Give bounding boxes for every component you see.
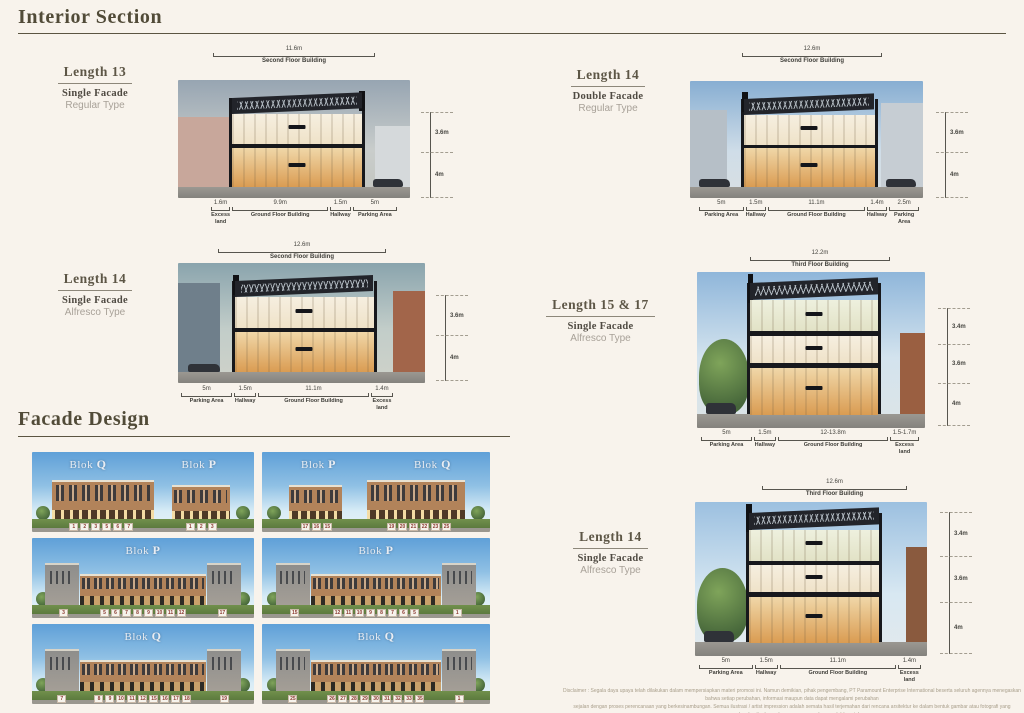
second-floor <box>235 297 373 328</box>
height-zone: 3.6m <box>936 112 968 152</box>
plot-number-marker: 15 <box>290 609 299 617</box>
dimension-line <box>742 53 882 57</box>
facade-type-label: Single Facade <box>538 321 663 332</box>
plot-number-marker: 32 <box>393 695 402 703</box>
shophouse-building <box>289 485 341 519</box>
shophouse-row <box>45 651 240 691</box>
plot-number-group: 123 <box>186 523 217 531</box>
width-segment: 1.5mHallway <box>745 200 767 226</box>
plot-number-marker: 16 <box>160 695 169 703</box>
street <box>178 372 425 383</box>
width-segment: 5mParking Area <box>352 200 398 226</box>
end-tower <box>276 563 310 605</box>
width-segment: 1.5mHallway <box>754 658 779 684</box>
dimension-value: 3.6m <box>952 361 966 367</box>
ground-floor <box>235 332 373 372</box>
plot-number-marker: 12 <box>138 695 147 703</box>
height-zone: 3.4m <box>938 308 970 344</box>
height-zone: 3.6m <box>421 112 453 152</box>
width-segment: 9.9mGround Floor Building <box>231 200 329 226</box>
plot-number-marker: 3 <box>208 523 217 531</box>
section-render-length15-17 <box>697 272 925 428</box>
plot-number-marker: 7 <box>122 609 131 617</box>
variant-type-label: Alfresco Type <box>25 307 165 318</box>
disclaimer-line: sejalan dengan proses perencanaan yang b… <box>563 703 1021 713</box>
plot-number-group: 15 <box>290 609 299 617</box>
height-zone: 3.6m <box>940 556 972 602</box>
plot-number-marker: 12 <box>333 609 342 617</box>
plot-number-marker: 9 <box>366 609 375 617</box>
section-label-length14-double: Length 14 Double Facade Regular Type <box>548 66 668 114</box>
plot-number-marker: 16 <box>312 523 321 531</box>
roof-truss <box>744 93 874 115</box>
width-segment: 1.4mExcess land <box>370 386 394 412</box>
plot-number-marker: 19 <box>387 523 396 531</box>
variant-type-label: Regular Type <box>25 100 165 111</box>
car <box>373 179 403 187</box>
blok-label: Blok Q <box>414 457 451 472</box>
plot-number-marker: 26 <box>327 695 336 703</box>
second-floor <box>750 336 878 364</box>
disclaimer-line: Disclaimer : Segala daya upaya telah dil… <box>563 687 1021 703</box>
plot-number-marker: 15 <box>149 695 158 703</box>
width-segment: 5mParking Area <box>698 200 745 226</box>
width-segment: 5mParking Area <box>698 658 754 684</box>
dimension-value: 4m <box>954 625 963 631</box>
neighbor-building <box>900 333 925 414</box>
second-floor <box>232 114 362 144</box>
plot-number-group: 3 <box>59 609 68 617</box>
plot-number-row: 15 12111098765 1 <box>262 609 490 617</box>
end-tower <box>207 649 240 691</box>
dimension-value: 4m <box>435 172 444 178</box>
variant-type-label: Alfresco Type <box>548 565 673 576</box>
brochure-page: Interior Section Length 13 Single Facade… <box>0 0 1024 713</box>
dimension-value: 3.6m <box>435 130 449 136</box>
height-zone: 3.6m <box>938 344 970 382</box>
section-render-length14-double <box>690 81 923 198</box>
width-segment: 1.4mHallway <box>866 200 888 226</box>
blok-labels: Blok Q <box>262 629 490 644</box>
height-zone: 4m <box>938 383 970 426</box>
dimension-value: 12.6m <box>762 479 907 485</box>
roof-truss <box>235 275 373 297</box>
length-title: Length 13 <box>58 64 133 84</box>
plot-number-row: 171615 192021222325 <box>262 523 490 531</box>
plot-number-marker: 1 <box>453 609 462 617</box>
plot-number-group: 17 <box>218 609 227 617</box>
dimension-line <box>218 249 386 253</box>
plot-number-marker: 6 <box>399 609 408 617</box>
facade-card-blokP-long-reverse: Blok P 15 12111098765 1 <box>262 538 490 618</box>
plot-number-group: 25 <box>288 695 297 703</box>
plot-number-marker: 10 <box>155 609 164 617</box>
ceiling-height-plaque <box>805 575 822 579</box>
facade-card-blokQ-long: Blok Q 7 8910111215161718 19 <box>32 624 254 704</box>
blok-labels: Blok Q Blok P <box>32 457 254 472</box>
plot-number-marker: 2 <box>197 523 206 531</box>
third-floor <box>749 530 879 561</box>
plot-number-marker: 28 <box>349 695 358 703</box>
plot-number-group: 171615 <box>301 523 332 531</box>
length-title: Length 14 <box>573 529 648 549</box>
plot-number-marker: 22 <box>420 523 429 531</box>
top-dimension: 12.6m Second Floor Building <box>218 242 386 260</box>
length-title: Length 14 <box>58 271 133 291</box>
facade-type-label: Single Facade <box>25 88 165 99</box>
plot-number-marker: 11 <box>166 609 175 617</box>
width-segment: 2.5mParking Area <box>888 200 920 226</box>
width-dimensions: 5mParking Area 1.5mHallway 12-13.8mGroun… <box>700 430 920 456</box>
ground-floor <box>744 148 874 187</box>
plot-number-group: 19 <box>220 695 229 703</box>
plot-number-marker: 19 <box>220 695 229 703</box>
plot-number-marker: 25 <box>442 523 451 531</box>
width-segment: 11.1mGround Floor Building <box>257 386 370 412</box>
plot-number-row: 25 262728293031323335 1 <box>262 695 490 703</box>
width-segment: 12-13.8mGround Floor Building <box>777 430 889 456</box>
plot-number-marker: 35 <box>415 695 424 703</box>
plot-number-marker: 3 <box>59 609 68 617</box>
ground-floor <box>232 148 362 187</box>
plot-number-marker: 21 <box>409 523 418 531</box>
plot-number-marker: 8 <box>94 695 103 703</box>
plot-number-marker: 10 <box>116 695 125 703</box>
height-zone: 4m <box>940 602 972 654</box>
neighbor-building <box>178 283 220 372</box>
plot-number-marker: 30 <box>371 695 380 703</box>
plot-number-group: 12111098765 <box>333 609 419 617</box>
tree <box>236 506 250 520</box>
car <box>706 403 736 414</box>
width-dimensions: 5mParking Area 1.5mHallway 11.1mGround F… <box>180 386 394 412</box>
facade-card-blokQ-long-reverse: Blok Q 25 262728293031323335 1 <box>262 624 490 704</box>
blok-labels: Blok P <box>262 543 490 558</box>
height-zone: 3.6m <box>436 295 468 335</box>
plot-number-row: 7 8910111215161718 19 <box>32 695 254 703</box>
top-dimension: 12.2m Third Floor Building <box>750 250 890 268</box>
width-segment: 1.6mExcess land <box>210 200 231 226</box>
plot-number-marker: 9 <box>144 609 153 617</box>
height-dimensions: 3.6m 4m <box>436 295 468 381</box>
shophouse-building <box>52 480 154 519</box>
facade-design-heading: Facade Design <box>18 408 150 431</box>
plot-number-group: 1 <box>455 695 464 703</box>
dimension-value: 12.6m <box>742 46 882 52</box>
facade-card-blokP-blokQ: Blok P Blok Q 171615 192021222325 <box>262 452 490 532</box>
ceiling-height-plaque <box>805 541 822 545</box>
width-dimensions: 5mParking Area 1.5mHallway 11.1mGround F… <box>698 658 922 684</box>
plot-number-marker: 9 <box>105 695 114 703</box>
street <box>178 187 410 198</box>
height-dimensions: 3.6m 4m <box>421 112 453 198</box>
ceiling-height-plaque <box>288 125 305 129</box>
ground-floor <box>749 597 879 643</box>
plot-number-group: 8910111215161718 <box>94 695 191 703</box>
width-dimensions: 1.6mExcess land 9.9mGround Floor Buildin… <box>210 200 398 226</box>
dimension-line <box>213 53 375 57</box>
dimension-value: 4m <box>950 172 959 178</box>
height-dimensions: 3.4m 3.6m 4m <box>938 308 970 426</box>
plot-number-marker: 11 <box>127 695 136 703</box>
plot-number-marker: 23 <box>431 523 440 531</box>
plot-number-row: 123567 123 <box>32 523 254 531</box>
plot-number-marker: 8 <box>377 609 386 617</box>
section-label-length14-left: Length 14 Single Facade Alfresco Type <box>25 270 165 318</box>
facade-card-blokP-long: Blok P 3 56789101112 17 <box>32 538 254 618</box>
neighbor-building <box>906 547 927 642</box>
plot-number-marker: 27 <box>338 695 347 703</box>
plot-number-marker: 15 <box>323 523 332 531</box>
tree <box>267 506 281 520</box>
disclaimer: Disclaimer : Segala daya upaya telah dil… <box>563 687 1021 713</box>
plot-number-group: 56789101112 <box>100 609 186 617</box>
plot-number-marker: 10 <box>355 609 364 617</box>
section-render-length14-right <box>695 502 927 656</box>
section-render-length13 <box>178 80 410 198</box>
blok-label: Blok Q <box>69 457 106 472</box>
height-zone: 4m <box>421 152 453 198</box>
plot-number-marker: 3 <box>91 523 100 531</box>
dimension-label: Second Floor Building <box>218 254 386 260</box>
ceiling-height-plaque <box>296 347 313 351</box>
building-cross-section <box>746 513 882 642</box>
facade-card-blokQ-blokP: Blok Q Blok P 123567 123 <box>32 452 254 532</box>
ceiling-height-plaque <box>288 163 305 167</box>
row-building <box>80 660 207 692</box>
roof-truss <box>749 507 879 529</box>
neighbor-building <box>690 110 727 187</box>
end-tower <box>276 649 310 691</box>
dimension-label: Third Floor Building <box>750 262 890 268</box>
dimension-value: 3.6m <box>450 313 464 319</box>
plot-number-marker: 8 <box>133 609 142 617</box>
heading-divider <box>18 33 1006 34</box>
shophouse-building <box>172 485 230 519</box>
width-dimensions: 5mParking Area 1.5mHallway 11.1mGround F… <box>698 200 920 226</box>
plot-number-marker: 17 <box>218 609 227 617</box>
tree <box>36 506 50 520</box>
blok-label: Blok P <box>181 457 216 472</box>
plot-number-marker: 7 <box>124 523 133 531</box>
dimension-value: 4m <box>952 401 961 407</box>
ceiling-height-plaque <box>805 386 822 390</box>
width-segment: 1.5-1.7mExcess land <box>889 430 920 456</box>
end-tower <box>442 649 476 691</box>
roof-truss <box>750 277 878 300</box>
second-floor <box>744 115 874 145</box>
shophouse-row <box>45 565 240 605</box>
blok-label: Blok Q <box>357 629 394 644</box>
ceiling-height-plaque <box>805 312 822 316</box>
section-label-length14-right: Length 14 Single Facade Alfresco Type <box>548 528 673 576</box>
plot-number-group: 1 <box>453 609 462 617</box>
plot-number-marker: 2 <box>80 523 89 531</box>
facade-type-label: Double Facade <box>548 91 668 102</box>
car <box>699 179 729 187</box>
dimension-line <box>762 486 907 490</box>
ceiling-height-plaque <box>801 163 818 167</box>
height-zone: 3.4m <box>940 512 972 556</box>
width-segment: 1.5mHallway <box>329 200 351 226</box>
plot-number-group: 123567 <box>69 523 133 531</box>
blok-label: Blok P <box>125 543 160 558</box>
dimension-label: Second Floor Building <box>742 58 882 64</box>
plot-number-marker: 12 <box>177 609 186 617</box>
blok-labels: Blok P Blok Q <box>262 457 490 472</box>
blok-label: Blok Q <box>124 629 161 644</box>
dimension-label: Second Floor Building <box>213 58 375 64</box>
top-dimension: 11.6m Second Floor Building <box>213 46 375 64</box>
building-cross-section <box>232 281 376 372</box>
roof-truss <box>232 92 362 114</box>
row-building <box>311 660 441 692</box>
shophouse-building <box>367 480 465 519</box>
width-segment: 5mParking Area <box>700 430 753 456</box>
dimension-value: 12.2m <box>750 250 890 256</box>
row-building <box>80 574 207 606</box>
plot-number-marker: 29 <box>360 695 369 703</box>
plot-number-marker: 17 <box>301 523 310 531</box>
end-tower <box>207 563 240 605</box>
street <box>697 414 925 428</box>
dimension-value: 4m <box>450 355 459 361</box>
plot-number-marker: 20 <box>398 523 407 531</box>
plot-number-marker: 5 <box>100 609 109 617</box>
plot-number-marker: 1 <box>69 523 78 531</box>
dimension-value: 3.6m <box>950 130 964 136</box>
plot-number-marker: 5 <box>102 523 111 531</box>
shophouse-row <box>276 651 477 691</box>
variant-type-label: Regular Type <box>548 103 668 114</box>
ceiling-height-plaque <box>296 309 313 313</box>
variant-type-label: Alfresco Type <box>538 333 663 344</box>
width-segment: 1.4mExcess land <box>897 658 922 684</box>
plot-number-marker: 33 <box>404 695 413 703</box>
plot-number-marker: 1 <box>186 523 195 531</box>
section-label-length15-17: Length 15 & 17 Single Facade Alfresco Ty… <box>538 296 663 344</box>
dimension-line <box>750 257 890 261</box>
section-label-length13: Length 13 Single Facade Regular Type <box>25 63 165 111</box>
width-segment: 11.1mGround Floor Building <box>779 658 897 684</box>
plot-number-marker: 5 <box>410 609 419 617</box>
plot-number-marker: 6 <box>111 609 120 617</box>
end-tower <box>45 563 78 605</box>
plot-number-marker: 18 <box>182 695 191 703</box>
plot-number-marker: 1 <box>455 695 464 703</box>
end-tower <box>442 563 476 605</box>
plot-number-row: 3 56789101112 17 <box>32 609 254 617</box>
plot-number-group: 192021222325 <box>387 523 451 531</box>
ceiling-height-plaque <box>805 614 822 618</box>
plot-number-marker: 7 <box>57 695 66 703</box>
height-dimensions: 3.6m 4m <box>936 112 968 198</box>
length-title: Length 15 & 17 <box>546 297 655 317</box>
dimension-value: 3.4m <box>952 324 966 330</box>
dimension-label: Third Floor Building <box>762 491 907 497</box>
row-building <box>311 574 441 606</box>
street <box>690 187 923 198</box>
top-dimension: 12.6m Third Floor Building <box>762 479 907 497</box>
width-segment: 1.5mHallway <box>233 386 257 412</box>
top-dimension: 12.6m Second Floor Building <box>742 46 882 64</box>
neighbor-building <box>178 117 231 188</box>
ceiling-height-plaque <box>801 126 818 130</box>
car <box>704 631 734 642</box>
section-render-length14-left <box>178 263 425 383</box>
neighbor-building <box>881 103 923 187</box>
dimension-value: 12.6m <box>218 242 386 248</box>
blok-label: Blok P <box>358 543 393 558</box>
plot-number-group: 262728293031323335 <box>327 695 424 703</box>
car <box>188 364 220 372</box>
tree <box>471 506 485 520</box>
plot-number-marker: 6 <box>113 523 122 531</box>
width-segment: 1.5mHallway <box>753 430 777 456</box>
blok-labels: Blok P <box>32 543 254 558</box>
building-cross-section <box>741 99 877 188</box>
heading-divider <box>18 436 510 437</box>
street <box>695 642 927 656</box>
dimension-value: 3.4m <box>954 531 968 537</box>
shophouse-row <box>276 565 477 605</box>
car <box>886 179 916 187</box>
second-floor <box>749 565 879 592</box>
end-tower <box>45 649 78 691</box>
plot-number-marker: 25 <box>288 695 297 703</box>
neighbor-building <box>393 291 425 373</box>
height-zone: 4m <box>936 152 968 198</box>
ground-floor <box>750 368 878 415</box>
dimension-value: 11.6m <box>213 46 375 52</box>
blok-labels: Blok Q <box>32 629 254 644</box>
blok-label: Blok P <box>301 457 336 472</box>
plot-number-group: 7 <box>57 695 66 703</box>
building-cross-section <box>229 98 365 188</box>
plot-number-marker: 7 <box>388 609 397 617</box>
width-segment: 11.1mGround Floor Building <box>767 200 866 226</box>
dimension-value: 3.6m <box>954 576 968 582</box>
facade-type-label: Single Facade <box>25 295 165 306</box>
height-zone: 4m <box>436 335 468 381</box>
third-floor <box>750 300 878 331</box>
building-cross-section <box>747 283 881 414</box>
facade-type-label: Single Facade <box>548 553 673 564</box>
length-title: Length 14 <box>571 67 646 87</box>
ceiling-height-plaque <box>805 346 822 350</box>
plot-number-marker: 17 <box>171 695 180 703</box>
interior-section-heading: Interior Section <box>18 6 162 29</box>
plot-number-marker: 11 <box>344 609 353 617</box>
plot-number-marker: 31 <box>382 695 391 703</box>
height-dimensions: 3.4m 3.6m 4m <box>940 512 972 654</box>
width-segment: 5mParking Area <box>180 386 233 412</box>
